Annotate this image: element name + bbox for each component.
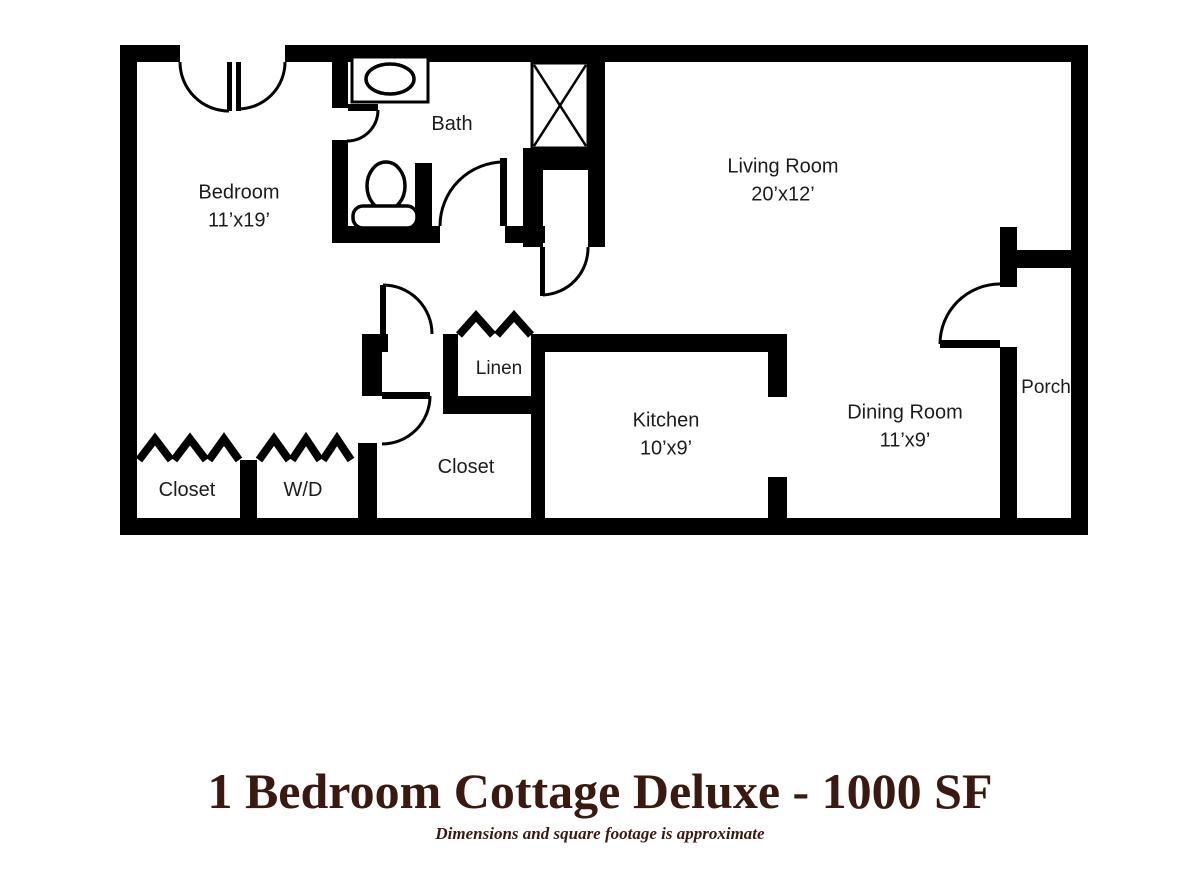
bedroom-double-door (180, 62, 285, 111)
wd-bifold-door (259, 439, 351, 460)
bath-south-door (440, 158, 507, 226)
room-dims: 10’x9’ (633, 435, 700, 463)
linen-bifold-door (459, 316, 531, 335)
room-label-hall-closet: Closet (438, 454, 495, 482)
room-label-linen: Linen (476, 356, 523, 382)
room-dims: 11’x9’ (847, 427, 963, 455)
floorplan-drawing (0, 0, 1200, 874)
room-name: Dining Room (847, 399, 963, 427)
room-name: Porch (1021, 375, 1071, 401)
room-label-bedroom: Bedroom 11’x19’ (198, 179, 279, 234)
walls (120, 45, 1088, 535)
bedroom-closet-door (382, 392, 430, 444)
room-dims: 20’x12’ (727, 181, 838, 209)
room-dims: 11’x19’ (198, 207, 279, 235)
porch-door (940, 284, 1000, 348)
room-name: W/D (284, 477, 323, 505)
plan-subtitle: Dimensions and square footage is approxi… (0, 824, 1200, 844)
room-label-wd: W/D (284, 477, 323, 505)
bath-north-door (347, 104, 378, 141)
room-label-dining-room: Dining Room 11’x9’ (847, 399, 963, 454)
room-label-bath: Bath (431, 111, 472, 139)
toilet-icon (353, 162, 417, 228)
room-name: Living Room (727, 153, 838, 181)
footer: 1 Bedroom Cottage Deluxe - 1000 SF Dimen… (0, 763, 1200, 844)
room-name: Bedroom (198, 179, 279, 207)
room-label-porch: Porch (1021, 375, 1071, 401)
room-name: Bath (431, 111, 472, 139)
closet-bifold-door (139, 439, 239, 460)
room-label-kitchen: Kitchen 10’x9’ (633, 407, 700, 462)
living-room-door (540, 247, 588, 296)
room-name: Closet (438, 454, 495, 482)
floorplan-canvas: Bedroom 11’x19’ Bath Living Room 20’x12’… (0, 0, 1200, 874)
room-label-living-room: Living Room 20’x12’ (727, 153, 838, 208)
plan-title: 1 Bedroom Cottage Deluxe - 1000 SF (0, 763, 1200, 821)
hall-closet-door (380, 285, 432, 334)
room-name: Kitchen (633, 407, 700, 435)
room-name: Linen (476, 356, 523, 382)
room-label-bedroom-closet: Closet (159, 477, 216, 505)
shower-icon (532, 63, 588, 148)
room-name: Closet (159, 477, 216, 505)
sink-icon (352, 57, 428, 102)
